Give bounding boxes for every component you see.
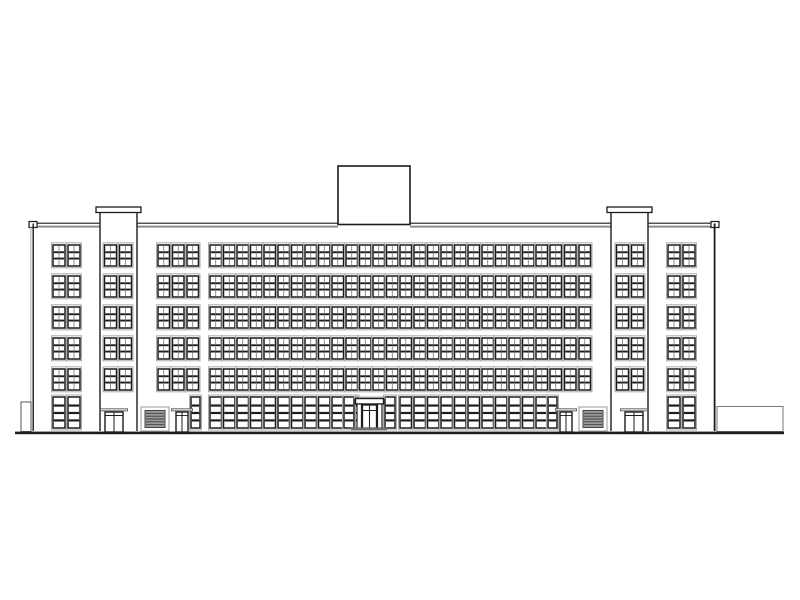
window-bar <box>238 412 248 414</box>
window-bar <box>265 404 275 406</box>
window <box>118 336 133 361</box>
window-bar <box>415 412 425 414</box>
window <box>277 274 292 299</box>
window <box>385 243 400 268</box>
window <box>578 305 593 330</box>
door <box>101 409 128 434</box>
window-bar <box>455 419 465 421</box>
window <box>118 274 133 299</box>
window-bar <box>192 419 199 421</box>
window-bar <box>523 404 533 406</box>
tower-cap <box>607 207 652 213</box>
window-bar <box>224 412 234 414</box>
window <box>358 367 373 392</box>
window <box>118 367 133 392</box>
window <box>277 305 292 330</box>
window <box>222 274 237 299</box>
window <box>549 367 564 392</box>
window <box>345 336 360 361</box>
door-canopy <box>101 409 128 411</box>
entrance-canopy <box>356 399 384 405</box>
window-bar <box>684 412 694 414</box>
window-bar <box>549 412 556 414</box>
window-bar <box>333 404 343 406</box>
window <box>508 367 523 392</box>
window <box>481 305 496 330</box>
window <box>331 274 346 299</box>
window <box>304 243 319 268</box>
window <box>157 243 172 268</box>
window <box>667 274 682 299</box>
window <box>209 243 224 268</box>
window <box>358 274 373 299</box>
ground-window <box>263 395 278 430</box>
window-bar <box>279 404 289 406</box>
window-bar <box>251 419 261 421</box>
penthouse-box <box>338 166 410 225</box>
window <box>578 367 593 392</box>
ground-window <box>467 395 482 430</box>
window <box>426 367 441 392</box>
window <box>103 367 118 392</box>
window <box>549 243 564 268</box>
window <box>263 367 278 392</box>
window <box>372 305 387 330</box>
window <box>630 243 645 268</box>
ground-window <box>236 395 251 430</box>
window <box>413 243 428 268</box>
window <box>440 305 455 330</box>
window-bar <box>549 404 556 406</box>
window-bar <box>549 419 556 421</box>
window <box>372 274 387 299</box>
ground-window <box>277 395 292 430</box>
louver-grille <box>579 407 607 431</box>
window <box>521 274 536 299</box>
window <box>615 367 630 392</box>
window <box>399 367 414 392</box>
window <box>440 243 455 268</box>
ground-window <box>384 395 397 430</box>
window-bar <box>496 404 506 406</box>
window <box>481 336 496 361</box>
window <box>682 336 697 361</box>
window <box>249 336 264 361</box>
window <box>222 305 237 330</box>
window <box>467 274 482 299</box>
window <box>494 305 509 330</box>
window <box>481 243 496 268</box>
window-bar <box>684 419 694 421</box>
window <box>578 243 593 268</box>
window <box>186 336 201 361</box>
window <box>682 243 697 268</box>
window <box>317 367 332 392</box>
window <box>453 305 468 330</box>
window <box>67 243 82 268</box>
ground <box>15 432 784 435</box>
window-bar <box>54 412 64 414</box>
window <box>508 243 523 268</box>
ground-window <box>667 395 682 430</box>
window <box>209 367 224 392</box>
ground-window <box>494 395 509 430</box>
window-bar <box>442 412 452 414</box>
window <box>171 305 186 330</box>
window <box>103 305 118 330</box>
window <box>186 243 201 268</box>
right-tower <box>607 207 652 434</box>
window-bar <box>345 412 353 414</box>
window <box>171 243 186 268</box>
window <box>413 305 428 330</box>
window <box>263 243 278 268</box>
window-bar <box>211 404 221 406</box>
window <box>67 336 82 361</box>
window <box>209 336 224 361</box>
window <box>667 243 682 268</box>
window <box>667 336 682 361</box>
window <box>615 274 630 299</box>
window <box>413 274 428 299</box>
window <box>304 274 319 299</box>
window <box>331 243 346 268</box>
window <box>440 274 455 299</box>
ground-window <box>67 395 82 430</box>
window <box>563 243 578 268</box>
window-bar <box>669 404 679 406</box>
window <box>453 274 468 299</box>
page-background <box>0 0 800 600</box>
window <box>236 274 251 299</box>
window <box>222 367 237 392</box>
window <box>157 305 172 330</box>
window <box>467 367 482 392</box>
tower-cap <box>96 207 141 213</box>
window <box>157 274 172 299</box>
window-bar <box>238 404 248 406</box>
window <box>578 336 593 361</box>
window <box>118 305 133 330</box>
entrance-pillar <box>357 404 362 428</box>
window <box>521 367 536 392</box>
window <box>249 305 264 330</box>
left-side-step <box>21 402 31 432</box>
window-bar <box>386 404 394 406</box>
window <box>331 305 346 330</box>
window-bar <box>192 412 199 414</box>
window <box>426 243 441 268</box>
window <box>453 367 468 392</box>
window <box>563 336 578 361</box>
window <box>103 336 118 361</box>
window-bar <box>442 419 452 421</box>
window <box>222 336 237 361</box>
window <box>615 305 630 330</box>
window-bar <box>455 404 465 406</box>
window <box>440 336 455 361</box>
window-bar <box>306 404 316 406</box>
entrance-pillar <box>378 404 383 428</box>
window <box>222 243 237 268</box>
window <box>52 305 67 330</box>
main-entrance <box>343 395 397 431</box>
window <box>385 305 400 330</box>
window <box>578 274 593 299</box>
window-bar <box>292 419 302 421</box>
window <box>52 243 67 268</box>
window-bar <box>483 404 493 406</box>
window-bar <box>306 412 316 414</box>
window-bar <box>319 404 329 406</box>
ground-window <box>304 395 319 430</box>
window <box>171 367 186 392</box>
window <box>535 336 550 361</box>
window-bar <box>238 419 248 421</box>
left-tower <box>96 207 141 434</box>
window <box>385 367 400 392</box>
door-canopy <box>172 409 193 411</box>
window-bar <box>510 412 520 414</box>
window <box>249 243 264 268</box>
window-bar <box>510 419 520 421</box>
door-canopy <box>621 409 648 411</box>
ground-window <box>249 395 264 430</box>
window <box>52 274 67 299</box>
window-bar <box>415 419 425 421</box>
window-bar <box>319 419 329 421</box>
window <box>630 367 645 392</box>
window <box>103 243 118 268</box>
window <box>399 274 414 299</box>
window <box>563 367 578 392</box>
window <box>630 274 645 299</box>
window-bar <box>319 412 329 414</box>
window-bar <box>386 419 394 421</box>
ground-window <box>209 395 224 430</box>
ground-window <box>521 395 536 430</box>
window <box>236 336 251 361</box>
window-bar <box>306 419 316 421</box>
window <box>426 336 441 361</box>
window <box>317 305 332 330</box>
window <box>630 336 645 361</box>
window-bar <box>69 412 79 414</box>
window <box>494 274 509 299</box>
window <box>103 274 118 299</box>
window-bar <box>469 419 479 421</box>
ground-window <box>290 395 305 430</box>
window <box>682 305 697 330</box>
window <box>453 243 468 268</box>
window <box>535 243 550 268</box>
window <box>236 305 251 330</box>
window-bar <box>224 419 234 421</box>
window <box>467 336 482 361</box>
window <box>186 305 201 330</box>
window <box>263 305 278 330</box>
window-bar <box>211 419 221 421</box>
window <box>277 367 292 392</box>
building-elevation-drawing <box>0 0 800 600</box>
window <box>521 305 536 330</box>
window <box>385 274 400 299</box>
window <box>236 367 251 392</box>
louver-grille <box>141 407 169 431</box>
window-bar <box>428 404 438 406</box>
window <box>521 336 536 361</box>
window <box>118 243 133 268</box>
window <box>615 243 630 268</box>
window <box>549 336 564 361</box>
window-bar <box>251 412 261 414</box>
window <box>290 305 305 330</box>
window-bar <box>496 419 506 421</box>
penthouse <box>338 166 410 225</box>
window <box>549 305 564 330</box>
window-bar <box>401 404 411 406</box>
window-bar <box>442 404 452 406</box>
window <box>413 367 428 392</box>
ground-window <box>222 395 237 430</box>
window <box>549 274 564 299</box>
window <box>186 367 201 392</box>
window <box>290 243 305 268</box>
window <box>399 336 414 361</box>
ground-window <box>317 395 332 430</box>
door-canopy <box>556 409 577 411</box>
window-bar <box>455 412 465 414</box>
window <box>52 367 67 392</box>
window <box>186 274 201 299</box>
window <box>277 243 292 268</box>
window-bar <box>684 404 694 406</box>
window <box>157 336 172 361</box>
window <box>535 274 550 299</box>
window-bar <box>345 404 353 406</box>
window-bar <box>469 412 479 414</box>
window <box>236 243 251 268</box>
window-bar <box>669 412 679 414</box>
window-bar <box>333 412 343 414</box>
window <box>481 274 496 299</box>
window-bar <box>401 412 411 414</box>
window-bar <box>192 404 199 406</box>
window-bar <box>224 404 234 406</box>
ground-window <box>682 395 697 430</box>
window <box>304 336 319 361</box>
ground-window <box>440 395 455 430</box>
window-bar <box>386 412 394 414</box>
window <box>358 243 373 268</box>
window <box>467 243 482 268</box>
window <box>317 243 332 268</box>
window <box>521 243 536 268</box>
window <box>331 367 346 392</box>
window <box>630 305 645 330</box>
window <box>317 274 332 299</box>
window <box>249 274 264 299</box>
window <box>171 336 186 361</box>
ground-window <box>547 395 559 430</box>
window <box>563 305 578 330</box>
window-bar <box>265 419 275 421</box>
window <box>317 336 332 361</box>
window-bar <box>54 419 64 421</box>
ground-window <box>453 395 468 430</box>
window-bar <box>279 412 289 414</box>
window-bar <box>401 419 411 421</box>
window <box>494 243 509 268</box>
window <box>290 274 305 299</box>
window-bar <box>537 404 547 406</box>
window-bar <box>292 412 302 414</box>
upper-floor-windows <box>52 243 697 392</box>
ground-window <box>481 395 496 430</box>
window <box>372 367 387 392</box>
window <box>290 336 305 361</box>
window-bar <box>537 412 547 414</box>
window <box>372 243 387 268</box>
window-bar <box>428 419 438 421</box>
window-bar <box>292 404 302 406</box>
window <box>481 367 496 392</box>
window <box>249 367 264 392</box>
window-bar <box>54 404 64 406</box>
window <box>682 274 697 299</box>
window <box>358 336 373 361</box>
window <box>535 305 550 330</box>
window <box>399 305 414 330</box>
window-bar <box>483 412 493 414</box>
window-bar <box>265 412 275 414</box>
window-bar <box>69 404 79 406</box>
window <box>358 305 373 330</box>
entrance-platform <box>351 428 387 431</box>
window <box>667 367 682 392</box>
window <box>304 367 319 392</box>
window <box>263 336 278 361</box>
ground-window <box>413 395 428 430</box>
window-bar <box>415 404 425 406</box>
window <box>467 305 482 330</box>
window <box>508 305 523 330</box>
window <box>563 274 578 299</box>
window-bar <box>251 404 261 406</box>
ground-window <box>399 395 414 430</box>
window <box>440 367 455 392</box>
window <box>331 336 346 361</box>
window <box>304 305 319 330</box>
window <box>345 243 360 268</box>
window <box>508 336 523 361</box>
window <box>277 336 292 361</box>
window <box>263 274 278 299</box>
window-bar <box>469 404 479 406</box>
window <box>535 367 550 392</box>
window-bar <box>483 419 493 421</box>
ground-window <box>343 395 356 430</box>
window <box>494 336 509 361</box>
window <box>157 367 172 392</box>
window <box>345 274 360 299</box>
window <box>426 274 441 299</box>
ground-window <box>190 395 202 430</box>
window <box>209 305 224 330</box>
window-bar <box>510 404 520 406</box>
window <box>67 367 82 392</box>
window <box>494 367 509 392</box>
